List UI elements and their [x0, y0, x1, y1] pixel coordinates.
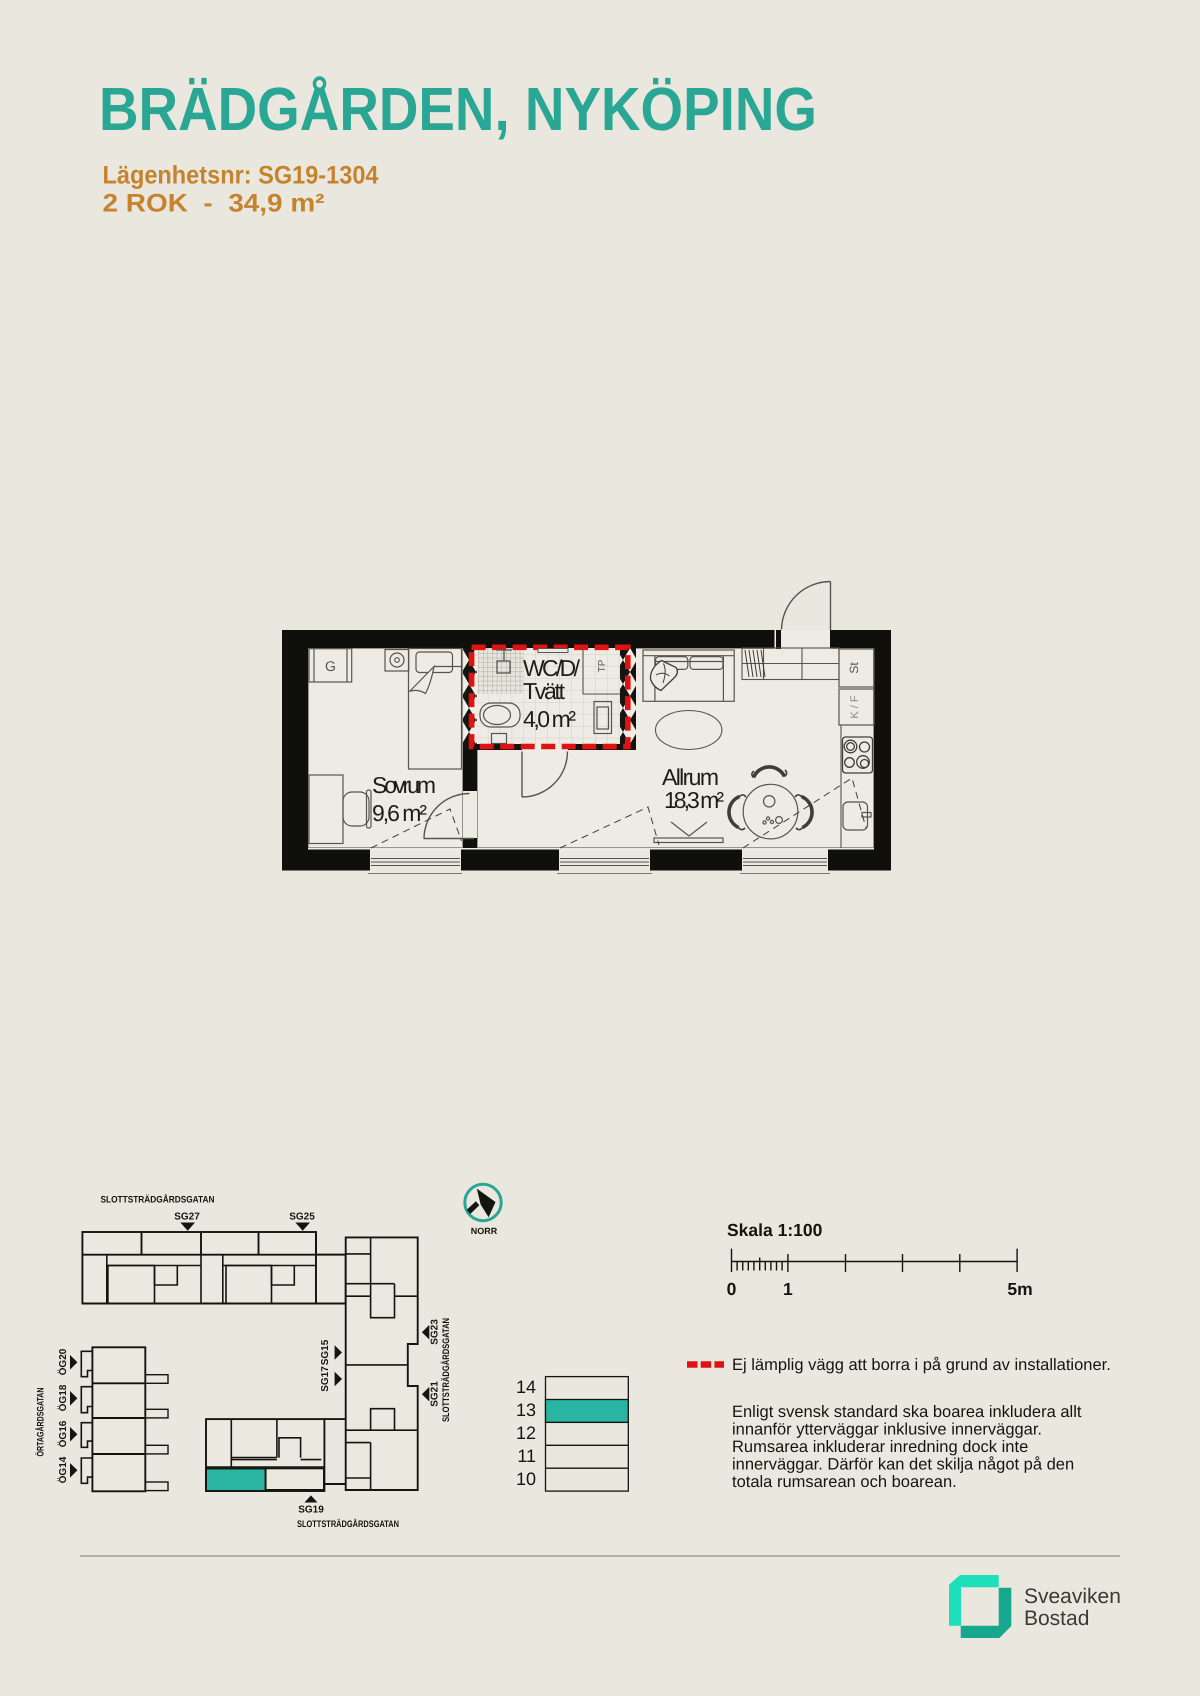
svg-text:G: G: [325, 658, 336, 674]
svg-text:0: 0: [727, 1279, 737, 1299]
svg-text:SLOTTSTRÄDGÅRDSGATAN: SLOTTSTRÄDGÅRDSGATAN: [297, 1518, 399, 1530]
svg-text:Ej lämplig vägg att borra i på: Ej lämplig vägg att borra i på grund av …: [732, 1356, 1111, 1374]
svg-text:2 ROK - 34,9 m²: 2 ROK - 34,9 m²: [103, 190, 325, 218]
svg-text:14: 14: [516, 1377, 536, 1397]
svg-text:totala rumsarean och boarean.: totala rumsarean och boarean.: [732, 1473, 957, 1491]
svg-text:13: 13: [516, 1400, 536, 1420]
svg-text:Rumsarea inkluderar inredning: Rumsarea inkluderar inredning dock inte: [732, 1438, 1028, 1456]
svg-text:TP: TP: [597, 659, 608, 672]
svg-text:SG15: SG15: [320, 1339, 331, 1365]
svg-text:ÖG20: ÖG20: [57, 1348, 69, 1375]
svg-text:NORR: NORR: [471, 1226, 498, 1236]
svg-text:innerväggar. Därför kan det sk: innerväggar. Därför kan det skilja något…: [732, 1456, 1074, 1474]
svg-text:4,0 m²: 4,0 m²: [523, 706, 576, 732]
svg-text:Sovrum: Sovrum: [372, 772, 436, 798]
svg-text:SG17: SG17: [320, 1366, 331, 1392]
svg-text:ÖG16: ÖG16: [57, 1420, 69, 1447]
svg-text:Skala 1:100: Skala 1:100: [727, 1220, 823, 1240]
svg-text:18,3 m²: 18,3 m²: [664, 787, 724, 813]
svg-text:SG19: SG19: [298, 1505, 324, 1516]
svg-text:SG23: SG23: [430, 1319, 441, 1345]
svg-text:9,6 m²: 9,6 m²: [372, 800, 427, 826]
svg-text:SG21: SG21: [430, 1381, 441, 1407]
svg-text:SG25: SG25: [289, 1212, 315, 1223]
svg-text:Sveaviken: Sveaviken: [1024, 1585, 1121, 1608]
svg-text:12: 12: [516, 1423, 536, 1443]
svg-text:1: 1: [783, 1279, 793, 1299]
svg-text:St: St: [847, 662, 861, 674]
svg-text:SG27: SG27: [174, 1212, 200, 1223]
svg-text:K / F: K / F: [849, 695, 861, 719]
svg-text:ÖG18: ÖG18: [57, 1384, 69, 1411]
svg-text:Tvätt: Tvätt: [523, 678, 566, 704]
svg-text:5m: 5m: [1007, 1279, 1032, 1299]
svg-text:BRÄDGÅRDEN, NYKÖPING: BRÄDGÅRDEN, NYKÖPING: [99, 75, 817, 143]
svg-text:SLOTTSTRÄDGÅRDSGATAN: SLOTTSTRÄDGÅRDSGATAN: [440, 1318, 452, 1422]
svg-text:Bostad: Bostad: [1024, 1607, 1089, 1630]
svg-text:10: 10: [516, 1469, 536, 1489]
svg-text:Enligt svensk standard ska boa: Enligt svensk standard ska boarea inklud…: [732, 1403, 1082, 1421]
svg-text:ÖRTAGÅRDSGATAN: ÖRTAGÅRDSGATAN: [34, 1387, 46, 1456]
svg-text:ÖG14: ÖG14: [57, 1456, 69, 1483]
svg-text:Lägenhetsnr: SG19-1304: Lägenhetsnr: SG19-1304: [103, 162, 380, 190]
svg-text:11: 11: [517, 1446, 536, 1466]
svg-text:SLOTTSTRÄDGÅRDSGATAN: SLOTTSTRÄDGÅRDSGATAN: [101, 1194, 215, 1206]
svg-text:innanför ytterväggar inklusive: innanför ytterväggar inklusive innervägg…: [732, 1421, 1042, 1439]
